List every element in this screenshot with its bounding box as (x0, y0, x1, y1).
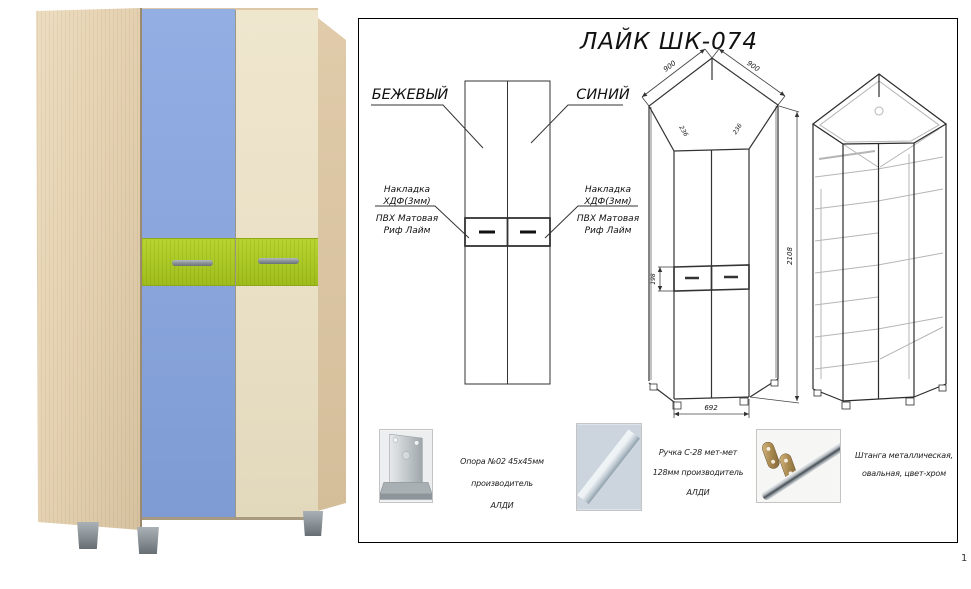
svg-text:ХДФ(3мм): ХДФ(3мм) (382, 197, 430, 207)
label-beige: БЕЖЕВЫЙ (372, 85, 449, 103)
wardrobe-bottom-edge (142, 517, 318, 520)
handle-photo (576, 423, 642, 511)
dim-900-right: 900 (745, 59, 761, 74)
rod-photo (756, 429, 841, 503)
svg-text:ХДФ(3мм): ХДФ(3мм) (583, 197, 631, 207)
dim-angle-right: 236 (732, 122, 744, 136)
foot-photo (379, 429, 433, 503)
svg-text:Риф Лайм: Риф Лайм (384, 226, 431, 236)
drawer-handle-right (258, 258, 299, 264)
door-seam (140, 8, 142, 528)
svg-text:Накладка: Накладка (384, 185, 430, 195)
wardrobe-foot (301, 511, 325, 536)
catalog-page: ЛАЙК ШК-074 БЕЖЕВЫЙ СИНИЙ Накл (0, 0, 971, 589)
interior-outline (813, 74, 946, 401)
page-number: 1 (961, 553, 967, 564)
spec-sheet: ЛАЙК ШК-074 БЕЖЕВЫЙ СИНИЙ Накл (358, 18, 958, 543)
dim-front-width: 692 (704, 404, 718, 412)
wardrobe-outline (649, 58, 778, 402)
svg-text:Риф Лайм: Риф Лайм (585, 226, 632, 236)
annotation-left: Накладка ХДФ(3мм) ПВХ Матовая Риф Лайм (376, 185, 439, 236)
wardrobe-left-side-panel (25, 5, 145, 533)
foot-caption: Опора №02 45х45мм производитель АЛДИ (435, 451, 569, 517)
label-blue: СИНИЙ (576, 85, 630, 103)
dim-drawer-height: 198 (650, 273, 657, 285)
front-view-drawing: БЕЖЕВЫЙ СИНИЙ Накладка ХДФ(3мм) ПВХ Мато… (369, 61, 659, 406)
rod-caption: Штанга металлическая, овальная, цвет-хро… (849, 447, 959, 483)
handle-caption: Ручка С-28 мет-мет 128мм производитель А… (646, 443, 750, 503)
svg-text:Накладка: Накладка (585, 185, 631, 195)
door-divider (235, 10, 236, 518)
doors-outline (465, 81, 550, 384)
drawer-band-outline (674, 265, 749, 291)
wardrobe-foot (75, 522, 101, 549)
wardrobe-foot (135, 527, 161, 554)
wardrobe-right-side-panel (315, 15, 347, 515)
dimension-drawing: 900 900 236 236 198 2108 692 (629, 46, 814, 446)
interior-drawing (809, 59, 971, 449)
dim-angle-left: 236 (677, 125, 689, 139)
dim-height: 2108 (786, 247, 794, 265)
wardrobe-photo (25, 5, 347, 563)
dimension-lines (642, 49, 799, 418)
svg-text:ПВХ Матовая: ПВХ Матовая (376, 214, 439, 224)
drawer-handle-left (172, 260, 213, 266)
